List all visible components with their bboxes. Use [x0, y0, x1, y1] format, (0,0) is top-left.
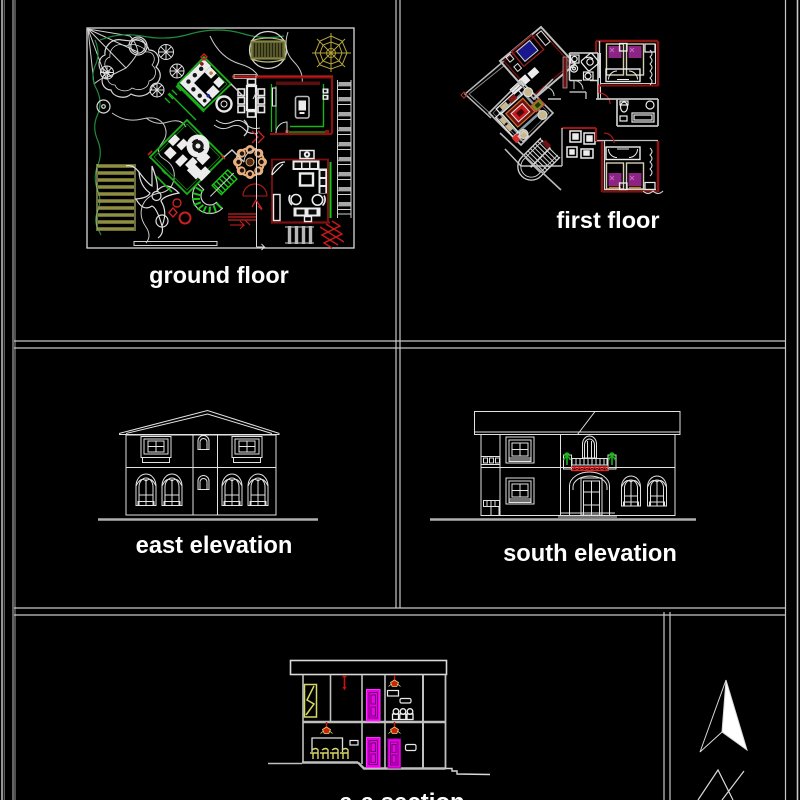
svg-text:ground floor: ground floor: [149, 262, 289, 288]
svg-text:first floor: first floor: [556, 207, 659, 233]
svg-text:a-a section: a-a section: [339, 789, 464, 800]
svg-text:east elevation: east elevation: [136, 533, 293, 559]
svg-text:south elevation: south elevation: [503, 541, 677, 567]
